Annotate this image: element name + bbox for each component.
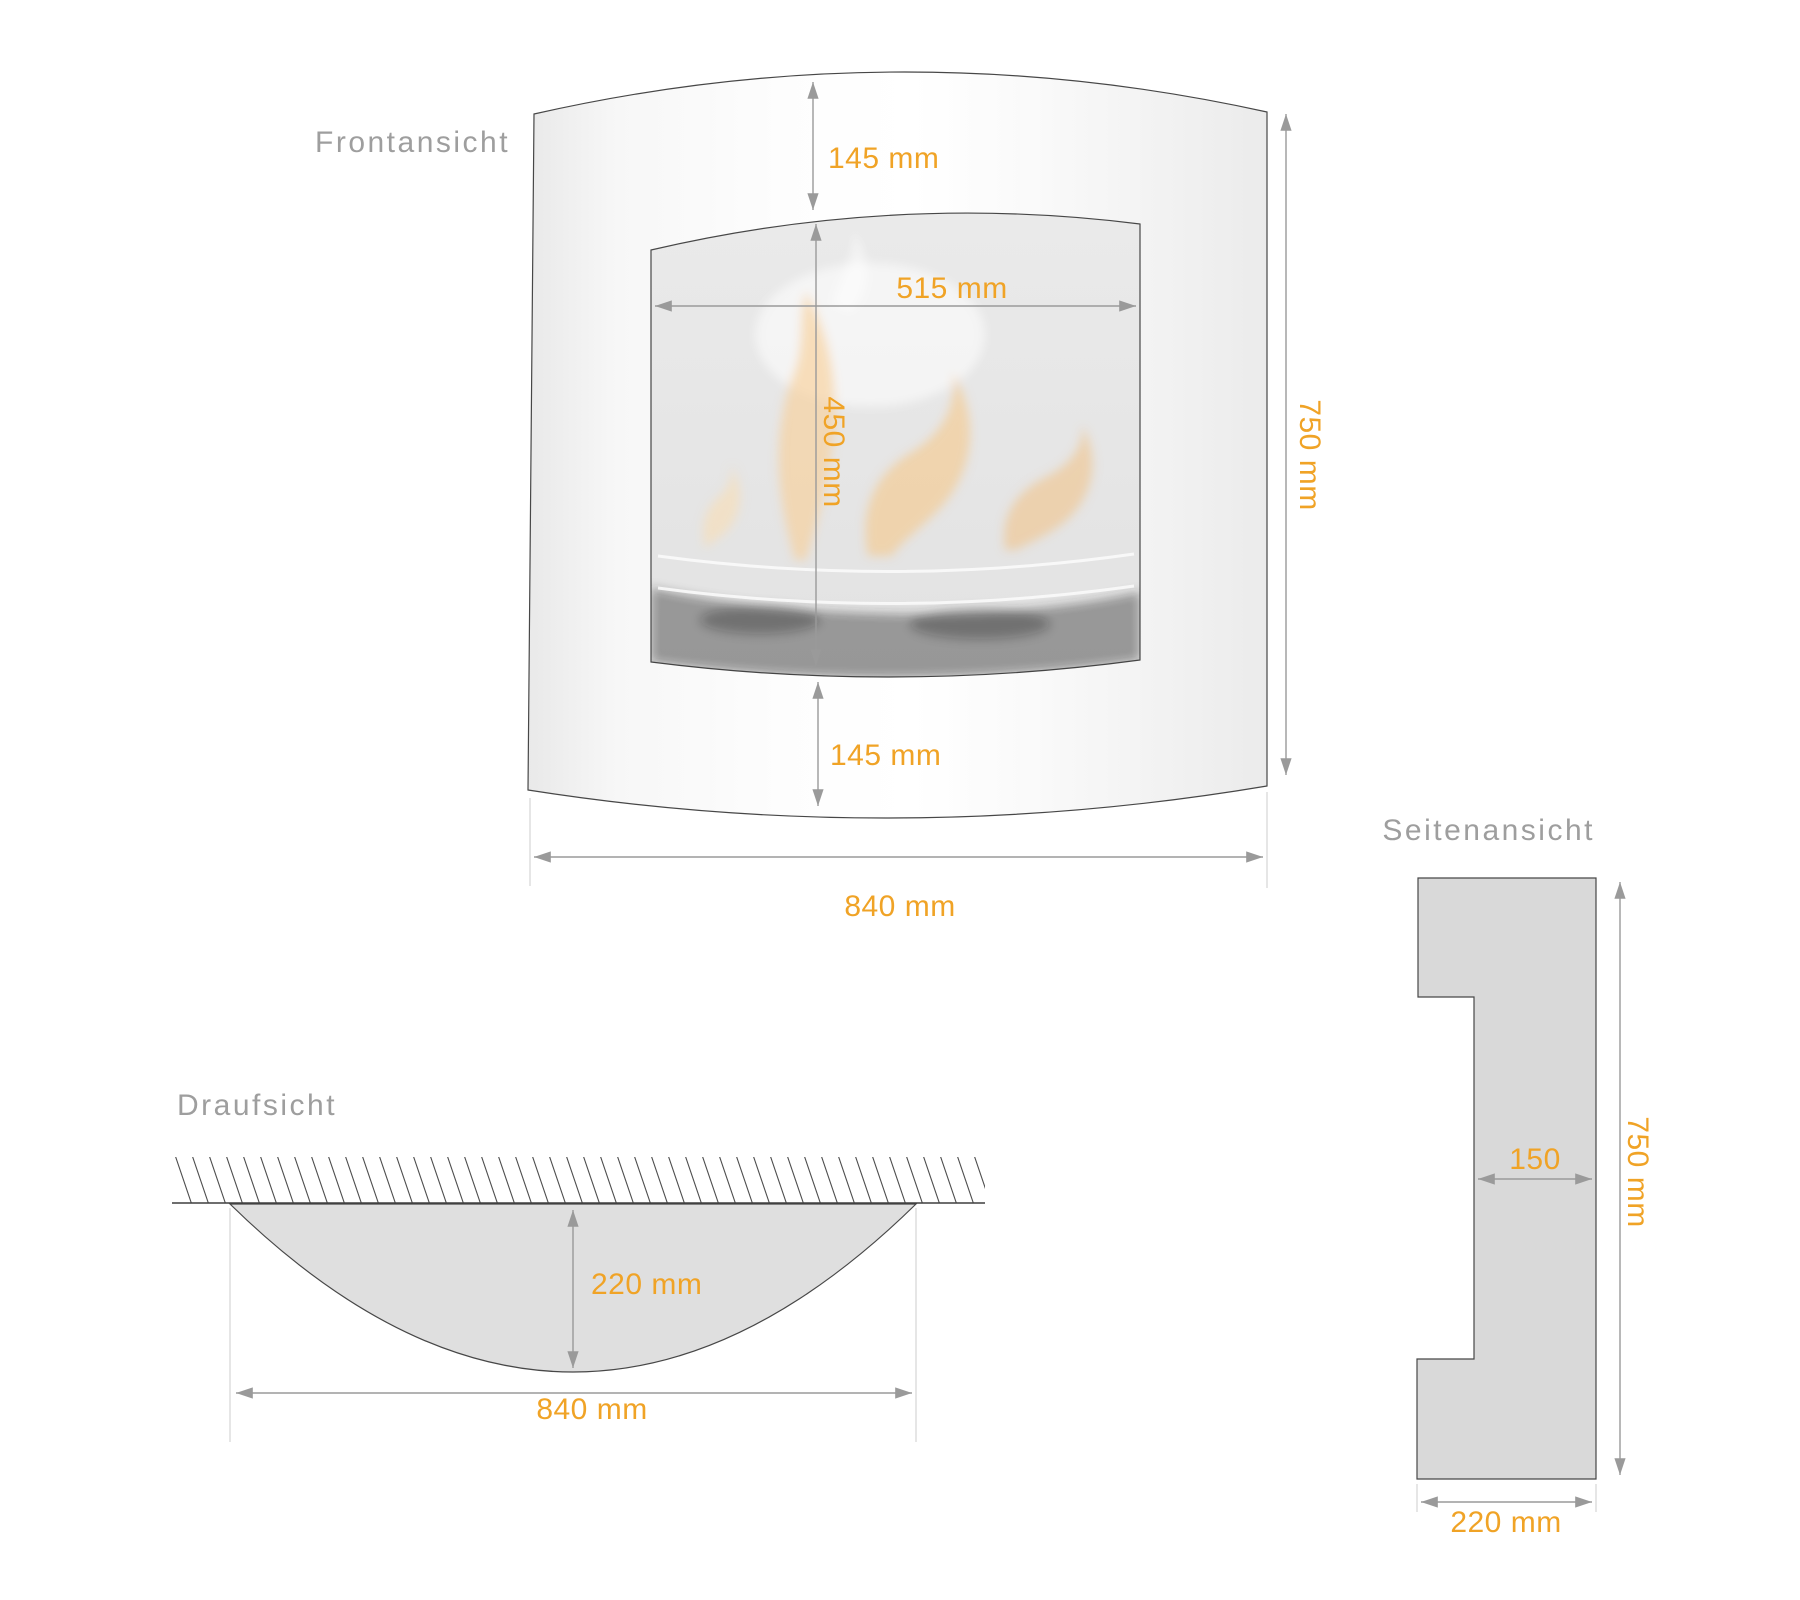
front-glass-width-label: 515 mm — [896, 272, 1007, 305]
side-upper-depth-label: 150 — [1509, 1143, 1561, 1176]
front-glass-height-label: 450 mm — [817, 396, 850, 507]
front-view: Frontansicht 145 mm 515 mm — [315, 72, 1326, 923]
front-width-label: 840 mm — [844, 890, 955, 923]
front-bottom-margin-label: 145 mm — [830, 739, 941, 772]
top-depth-label: 220 mm — [591, 1268, 702, 1301]
drawing-canvas: Frontansicht 145 mm 515 mm — [0, 0, 1800, 1600]
side-view-title: Seitenansicht — [1382, 814, 1595, 847]
front-view-title: Frontansicht — [315, 126, 510, 159]
top-width-label: 840 mm — [536, 1393, 647, 1426]
front-height-label: 750 mm — [1293, 399, 1326, 510]
log — [910, 609, 1050, 639]
technical-drawing-page: Frontansicht 145 mm 515 mm — [0, 0, 1800, 1600]
log — [700, 606, 820, 634]
top-view: Draufsicht 220 mm 840 mm — [172, 1089, 985, 1442]
side-view: Seitenansicht 150 750 mm 220 mm — [1382, 814, 1654, 1539]
wall-hatching — [175, 1157, 985, 1203]
side-height-label: 750 mm — [1621, 1116, 1654, 1227]
top-view-title: Draufsicht — [177, 1089, 337, 1122]
side-width-label: 220 mm — [1450, 1506, 1561, 1539]
front-top-margin-label: 145 mm — [828, 142, 939, 175]
